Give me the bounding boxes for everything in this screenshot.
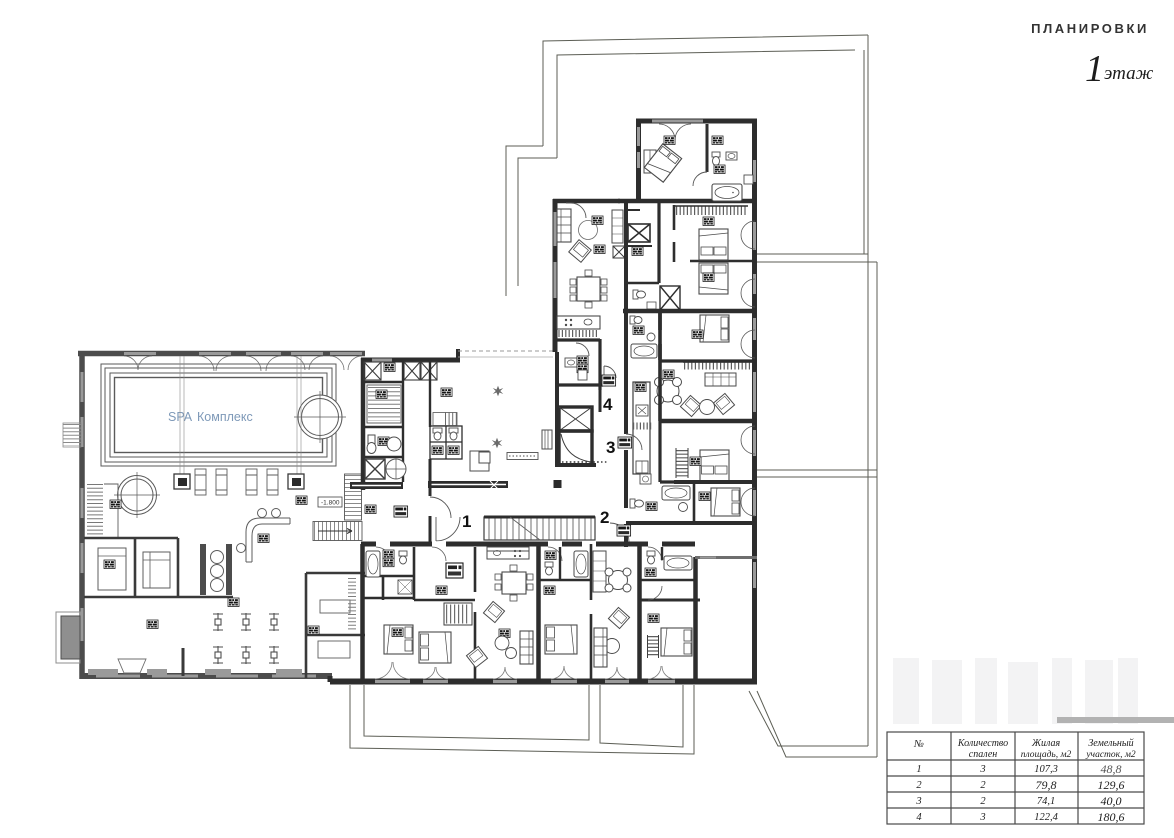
svg-text:107,3: 107,3 [1034, 764, 1058, 775]
svg-text:180,6: 180,6 [1098, 810, 1125, 824]
svg-text:Земельный: Земельный [1088, 738, 1133, 749]
svg-text:1: 1 [462, 512, 471, 531]
svg-text:этаж: этаж [1104, 63, 1154, 84]
svg-text:2: 2 [916, 780, 922, 791]
svg-text:Жилая: Жилая [1031, 738, 1061, 749]
svg-text:1: 1 [916, 764, 921, 775]
svg-text:спален: спален [969, 749, 997, 760]
svg-text:4: 4 [916, 812, 922, 823]
svg-text:3: 3 [979, 764, 985, 775]
svg-text:участок, м2: участок, м2 [1085, 750, 1136, 760]
svg-text:40,0: 40,0 [1101, 794, 1122, 808]
svg-text:79,8: 79,8 [1036, 778, 1057, 792]
svg-text:3: 3 [915, 796, 921, 807]
svg-text:2: 2 [980, 796, 986, 807]
svg-text:2: 2 [980, 780, 986, 791]
svg-text:3: 3 [979, 812, 985, 823]
svg-text:2: 2 [600, 508, 609, 527]
svg-text:74,1: 74,1 [1037, 796, 1055, 807]
svg-text:Количество: Количество [957, 738, 1008, 749]
svg-text:4: 4 [603, 395, 613, 414]
svg-text:122,4: 122,4 [1034, 812, 1058, 823]
svg-text:площадь, м2: площадь, м2 [1021, 749, 1072, 760]
svg-text:3: 3 [606, 438, 615, 457]
svg-text:SPA: SPA [168, 410, 193, 424]
svg-text:Комплекс: Комплекс [197, 410, 253, 424]
svg-text:№: № [913, 739, 924, 750]
svg-text:-1.800: -1.800 [321, 500, 340, 507]
svg-text:129,6: 129,6 [1098, 778, 1125, 792]
svg-text:1: 1 [1085, 48, 1104, 90]
svg-text:48,8: 48,8 [1101, 762, 1122, 776]
svg-text:ПЛАНИРОВКИ: ПЛАНИРОВКИ [1031, 21, 1149, 36]
